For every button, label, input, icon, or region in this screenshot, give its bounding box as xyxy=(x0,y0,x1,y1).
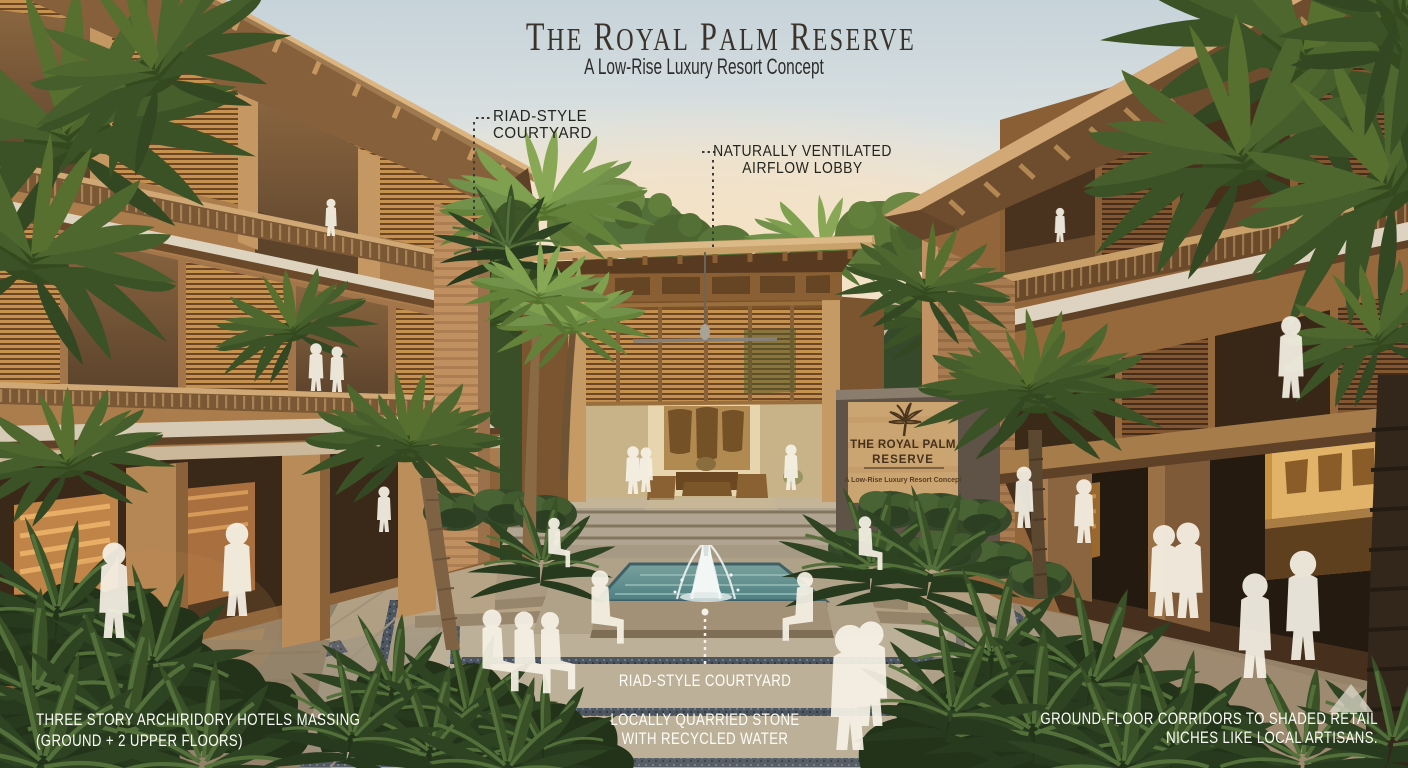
svg-text:THE ROYAL PALM: THE ROYAL PALM xyxy=(850,439,956,451)
svg-text:RESERVE: RESERVE xyxy=(872,454,934,466)
svg-text:A Low-Rise Luxury Resort Conce: A Low-Rise Luxury Resort Concept xyxy=(844,477,962,484)
